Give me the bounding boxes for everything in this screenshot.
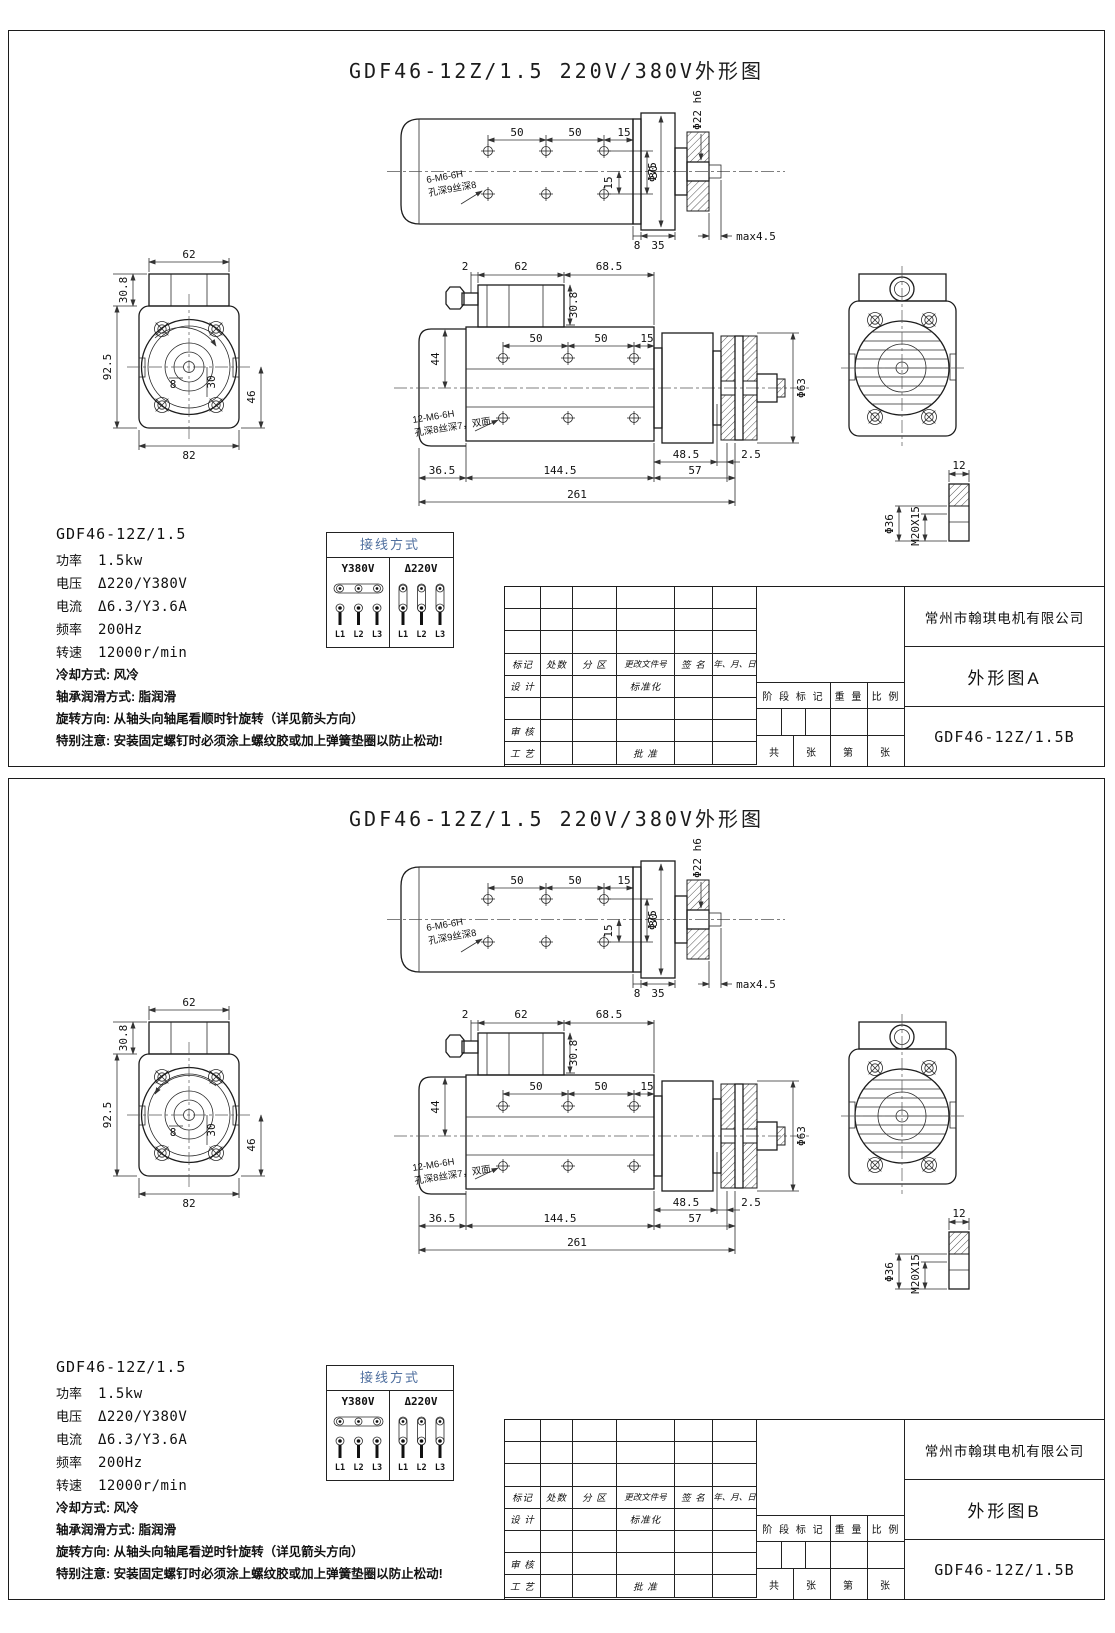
dim-label: 2 [462,1008,469,1021]
tb-label-zhang2: 张 [868,736,905,766]
tb-cell [573,587,617,609]
tb-cell [573,1464,617,1486]
tb-header-fenqu: 分 区 [573,654,617,676]
dim-label: 62 [182,248,195,261]
tb-cell [573,742,617,764]
tb-label-zhongliang: 重 量 [831,1516,868,1542]
spec-label: 频率 [56,1451,90,1474]
dim-label: 48.5 [673,448,700,461]
tb-label-biaozhunhua: 标准化 [617,676,675,698]
dim-label: Φ75 [646,162,659,182]
drawing-sheet: GDF46-12Z/1.5 220V/380V外形图 50 50 15 30 1… [8,778,1105,1600]
tb-cell [541,1420,573,1442]
tb-cell [573,1553,617,1575]
tb-cell [713,720,757,742]
tb-label-zhang1: 张 [794,736,831,766]
tb-label-sheji: 设 计 [505,676,541,698]
drawing-number: GDF46-12Z/1.5B [905,1540,1104,1599]
tb-label-shenhe: 审 核 [505,720,541,742]
dim-label: 92.5 [101,354,114,381]
dim-label: 144.5 [543,464,576,477]
dim-label: 36.5 [429,1212,456,1225]
terminal-label: L1 [398,630,408,640]
title-block-stage-section: 阶 段 标 记 重 量 比 例 共 张 第 张 [757,587,905,766]
drawing-name: 外形图B [905,1480,1104,1540]
terminal-label: L2 [353,630,363,640]
title-block-revision-grid: 标记 处数 分 区 更改文件号 签 名 年、月、日 设 计 标准化 审 核 工 … [505,587,757,766]
dim-label: Φ75 [646,910,659,930]
dim-label: 15 [602,176,615,189]
drawing-sheet: GDF46-12Z/1.5 220V/380V外形图 50 50 15 30 1… [8,30,1105,767]
spec-value: 1.5kw [98,553,143,569]
tb-cell [713,609,757,631]
tb-cell [713,698,757,720]
tb-cell [757,587,905,683]
spec-label: 电流 [56,1428,90,1451]
tb-header-fenqu: 分 区 [573,1487,617,1509]
dim-label: 15 [602,924,615,937]
tb-label-biaozhunhua: 标准化 [617,1509,675,1531]
tb-cell [573,1442,617,1464]
tb-cell [505,1420,541,1442]
front-view: 2 62 68.5 30.8 50 50 15 44 12-M6-6H 孔深8丝… [394,260,809,506]
tb-cell [675,609,713,631]
tb-cell [505,698,541,720]
dim-label: 30.8 [567,1040,580,1067]
fan-view [841,1014,964,1194]
wiring-box: 接线方式 Y380V L1 L2 L3 [326,1365,454,1481]
dim-label: 50 [510,126,523,139]
dim-label: M20X15 [909,1254,922,1294]
tb-cell [713,1531,757,1553]
dim-label: 8 [170,1126,177,1139]
tb-cell [782,1542,807,1570]
spec-label: 功率 [56,1382,90,1405]
tb-cell [675,1531,713,1553]
tb-header-riqi: 年、月、日 [713,654,757,676]
dim-label: 82 [182,449,195,462]
terminal-label: L3 [372,1463,382,1473]
dim-label: 62 [514,1008,527,1021]
tb-cell [617,720,675,742]
tb-cell [505,587,541,609]
tb-cell [541,1442,573,1464]
dim-label: 30.8 [567,292,580,319]
terminal-label: L1 [335,1463,345,1473]
tb-cell [541,1553,573,1575]
wiring-col-y380: Y380V L1 L2 L3 [327,558,390,647]
dim-label: 57 [688,464,701,477]
tb-cell [617,1553,675,1575]
terminal-label: L2 [353,1463,363,1473]
dim-label: 62 [514,260,527,273]
tb-cell [505,1464,541,1486]
tb-header-biaoji: 标记 [505,654,541,676]
tb-cell [757,1542,782,1570]
dim-label: 35 [651,239,664,252]
spec-label: 功率 [56,549,90,572]
title-block: 标记 处数 分 区 更改文件号 签 名 年、月、日 设 计 标准化 审 核 工 … [504,586,1104,766]
tb-cell [541,609,573,631]
wiring-diagram-d: L1 L2 L3 [390,1411,452,1475]
sheets-container: GDF46-12Z/1.5 220V/380V外形图 50 50 15 30 1… [8,30,1107,1600]
tb-cell [573,1575,617,1597]
dim-label: Φ36 [883,1262,896,1282]
tb-cell [713,1420,757,1442]
tb-cell [505,1442,541,1464]
tb-cell [675,1442,713,1464]
tb-cell [541,1575,573,1597]
tb-cell [617,1442,675,1464]
wiring-col-d220: Δ220V L1 L2 L3 [390,1391,452,1480]
title-block-stage-section: 阶 段 标 记 重 量 比 例 共 张 第 张 [757,1420,905,1599]
tb-cell [782,709,807,737]
dim-label: Φ36 [883,514,896,534]
tb-cell [675,1509,713,1531]
dim-label: Φ63 [795,378,808,398]
tb-label-di: 第 [831,736,868,766]
drawing-name: 外形图A [905,647,1104,707]
tb-label-jieduan: 阶 段 标 记 [757,1516,831,1542]
wiring-col-label: Y380V [327,558,389,578]
dim-label: 8 [634,239,641,252]
spec-label: 电压 [56,1405,90,1428]
tb-cell [757,1420,905,1516]
tb-cell [573,720,617,742]
terminal-label: L3 [435,1463,445,1473]
tb-cell [505,631,541,653]
dim-label: 8 [634,987,641,1000]
dim-label: 35 [651,987,664,1000]
title-block-id-section: 常州市翰琪电机有限公司 外形图A GDF46-12Z/1.5B [905,587,1104,766]
tb-cell [505,1531,541,1553]
dim-label: 57 [688,1212,701,1225]
spec-label: 频率 [56,618,90,641]
company-name: 常州市翰琪电机有限公司 [905,587,1104,647]
tb-cell [675,742,713,764]
tb-cell [617,587,675,609]
sheet-title: GDF46-12Z/1.5 220V/380V外形图 [9,803,1104,832]
tb-cell [573,631,617,653]
spec-label: 转速 [56,641,90,664]
spec-note-lubrication: 轴承润滑方式: 脂润滑 [56,686,496,708]
terminal-label: L2 [416,630,426,640]
tb-header-genggai: 更改文件号 [617,1487,675,1509]
title-block: 标记 处数 分 区 更改文件号 签 名 年、月、日 设 计 标准化 审 核 工 … [504,1419,1104,1599]
tb-header-chushu: 处数 [541,654,573,676]
end-view: 62 30.8 92.5 82 46 8 30 [101,996,265,1210]
spec-note-lubrication: 轴承润滑方式: 脂润滑 [56,1519,496,1541]
dim-label: 30.8 [117,1025,130,1052]
tb-cell [713,742,757,764]
tb-cell [541,698,573,720]
dim-label: 46 [245,390,258,403]
wiring-header: 接线方式 [327,533,453,558]
spec-label: 电压 [56,572,90,595]
tb-label-gongyi: 工 艺 [505,1575,541,1597]
dim-label: 92.5 [101,1102,114,1129]
tb-header-qianming: 签 名 [675,1487,713,1509]
tb-cell [675,676,713,698]
dim-label: 30 [205,1123,218,1136]
tb-cell [617,1420,675,1442]
spec-note-special: 特别注意: 安装固定螺钉时必须涂上螺纹胶或加上弹簧垫圈以防止松动! [56,1563,496,1585]
tb-cell [675,720,713,742]
tb-cell [617,1464,675,1486]
spec-label: 电流 [56,595,90,618]
wiring-col-label: Y380V [327,1391,389,1411]
tb-cell [617,631,675,653]
wiring-header: 接线方式 [327,1366,453,1391]
wiring-col-y380: Y380V L1 L2 L3 [327,1391,390,1480]
dim-label: 50 [529,332,542,345]
wiring-col-d220: Δ220V L1 L2 L3 [390,558,452,647]
dim-label: 30 [205,375,218,388]
dim-label: 68.5 [596,260,623,273]
dim-label: 50 [510,874,523,887]
dim-label: 2.5 [741,448,761,461]
dim-label: 46 [245,1138,258,1151]
tb-cell [541,1509,573,1531]
tb-cell [617,609,675,631]
tb-label-bili: 比 例 [868,683,905,709]
dim-label: M20X15 [909,506,922,546]
tb-header-biaoji: 标记 [505,1487,541,1509]
spec-value: 12000r/min [98,1478,187,1494]
terminal-label: L2 [416,1463,426,1473]
tb-cell [573,698,617,720]
tb-label-pizhun: 批 准 [617,742,675,764]
top-view: 50 50 15 30 15 6-M6-6H 孔深9丝深8 Φ75 Φ22 h6 [387,90,785,252]
tb-header-genggai: 更改文件号 [617,654,675,676]
tb-cell [675,698,713,720]
tb-label-sheji: 设 计 [505,1509,541,1531]
shaft-detail: 12 Φ36 M20X15 [883,1207,969,1294]
tb-cell [573,609,617,631]
tb-cell [617,698,675,720]
wiring-diagram-d: L1 L2 L3 [390,578,452,642]
dim-label: 261 [567,488,587,501]
tb-cell [573,1420,617,1442]
dim-label: 15 [640,1080,653,1093]
tb-label-gongyi: 工 艺 [505,742,541,764]
dim-label: 82 [182,1197,195,1210]
wiring-col-label: Δ220V [390,558,452,578]
tb-cell [541,587,573,609]
spec-value: 12000r/min [98,645,187,661]
spec-value: Δ220/Y380V [98,1409,187,1425]
tb-label-jieduan: 阶 段 标 记 [757,683,831,709]
dim-label: 48.5 [673,1196,700,1209]
dim-label: 15 [617,126,630,139]
tb-cell [675,1575,713,1597]
dim-label: Φ22 h6 [691,838,704,878]
dim-label: 15 [640,332,653,345]
terminal-label: L1 [335,630,345,640]
terminal-label: L1 [398,1463,408,1473]
fan-view [841,266,964,446]
dim-label: 50 [594,1080,607,1093]
page: GDF46-12Z/1.5 220V/380V外形图 50 50 15 30 1… [0,0,1115,1633]
drawing-number: GDF46-12Z/1.5B [905,707,1104,766]
tb-cell [831,709,868,737]
tb-label-zhongliang: 重 量 [831,683,868,709]
dim-label: 12 [952,1207,965,1220]
tb-cell [713,1553,757,1575]
dim-label: 2.5 [741,1196,761,1209]
tb-cell [713,1575,757,1597]
wiring-diagram-y: L1 L2 L3 [327,1411,389,1475]
dim-label: 2 [462,260,469,273]
spec-note-cooling: 冷却方式: 风冷 [56,1497,496,1519]
terminal-label: L3 [372,630,382,640]
engineering-drawing-canvas: 50 50 15 30 15 6-M6-6H 孔深9丝深8 Φ75 Φ22 h6 [9,86,1106,546]
tb-cell [617,1531,675,1553]
tb-label-di: 第 [831,1569,868,1599]
dim-label: 50 [529,1080,542,1093]
tb-cell [675,1464,713,1486]
spec-note-cooling: 冷却方式: 风冷 [56,664,496,686]
dim-label: 261 [567,1236,587,1249]
spec-note-rotation: 旋转方向: 从轴头向轴尾看逆时针旋转（详见箭头方向） [56,1541,496,1563]
tb-header-qianming: 签 名 [675,654,713,676]
dim-label: 30.8 [117,277,130,304]
tb-cell [541,742,573,764]
spec-note-rotation: 旋转方向: 从轴头向轴尾看顺时针旋转（详见箭头方向） [56,708,496,730]
dim-label: 44 [429,1100,442,1114]
wiring-box: 接线方式 Y380V L1 L2 L3 [326,532,454,648]
dim-label: 144.5 [543,1212,576,1225]
dim-label: 50 [568,126,581,139]
tb-cell [868,1542,905,1570]
dim-label: 68.5 [596,1008,623,1021]
tb-cell [541,631,573,653]
tb-label-bili: 比 例 [868,1516,905,1542]
tb-cell [806,709,831,737]
engineering-drawing-canvas: 50 50 15 30 15 6-M6-6H 孔深9丝深8 Φ75 Φ22 h6 [9,834,1106,1294]
tb-cell [713,1442,757,1464]
tb-cell [757,709,782,737]
terminal-label: L3 [435,630,445,640]
spec-label: 转速 [56,1474,90,1497]
tb-cell [713,631,757,653]
tb-cell [573,676,617,698]
shaft-detail: 12 Φ36 M20X15 [883,459,969,546]
top-view: 50 50 15 30 15 6-M6-6H 孔深9丝深8 Φ75 Φ22 h6 [387,838,785,1000]
tb-cell [713,676,757,698]
tb-cell [675,587,713,609]
tb-cell [675,1420,713,1442]
title-block-id-section: 常州市翰琪电机有限公司 外形图B GDF46-12Z/1.5B [905,1420,1104,1599]
tb-header-chushu: 处数 [541,1487,573,1509]
spec-value: Δ220/Y380V [98,576,187,592]
wiring-diagram-y: L1 L2 L3 [327,578,389,642]
tb-cell [806,1542,831,1570]
dim-label: max4.5 [736,230,776,243]
tb-cell [541,676,573,698]
spec-value: 200Hz [98,622,143,638]
tb-label-pizhun: 批 准 [617,1575,675,1597]
tb-label-zhang1: 张 [794,1569,831,1599]
wiring-col-label: Δ220V [390,1391,452,1411]
tb-label-zhang2: 张 [868,1569,905,1599]
sheet-title: GDF46-12Z/1.5 220V/380V外形图 [9,55,1104,84]
title-block-revision-grid: 标记 处数 分 区 更改文件号 签 名 年、月、日 设 计 标准化 审 核 工 … [505,1420,757,1599]
tb-cell [573,1509,617,1531]
dim-label: 36.5 [429,464,456,477]
dim-label: max4.5 [736,978,776,991]
spec-value: 1.5kw [98,1386,143,1402]
tb-cell [541,1464,573,1486]
spec-value: Δ6.3/Y3.6A [98,1432,187,1448]
tb-cell [713,1509,757,1531]
tb-cell [573,1531,617,1553]
company-name: 常州市翰琪电机有限公司 [905,1420,1104,1480]
dim-label: 44 [429,352,442,366]
dim-label: 12 [952,459,965,472]
spec-value: Δ6.3/Y3.6A [98,599,187,615]
dim-label: 50 [594,332,607,345]
tb-cell [675,1553,713,1575]
tb-header-riqi: 年、月、日 [713,1487,757,1509]
dim-label: 8 [170,378,177,391]
tb-label-shenhe: 审 核 [505,1553,541,1575]
tb-label-gong: 共 [757,736,794,766]
dim-label: Φ63 [795,1126,808,1146]
tb-cell [675,631,713,653]
tb-cell [713,1464,757,1486]
dim-label: 62 [182,996,195,1009]
dim-label: Φ22 h6 [691,90,704,130]
tb-cell [505,609,541,631]
dim-label: 15 [617,874,630,887]
spec-note-special: 特别注意: 安装固定螺钉时必须涂上螺纹胶或加上弹簧垫圈以防止松动! [56,730,496,752]
tb-cell [831,1542,868,1570]
tb-cell [713,587,757,609]
tb-cell [541,1531,573,1553]
tb-cell [868,709,905,737]
tb-label-gong: 共 [757,1569,794,1599]
tb-cell [541,720,573,742]
dim-label: 50 [568,874,581,887]
front-view: 2 62 68.5 30.8 50 50 15 44 12-M6-6H 孔深8丝… [394,1008,809,1254]
spec-value: 200Hz [98,1455,143,1471]
end-view: 62 30.8 92.5 82 46 8 30 [101,248,265,462]
